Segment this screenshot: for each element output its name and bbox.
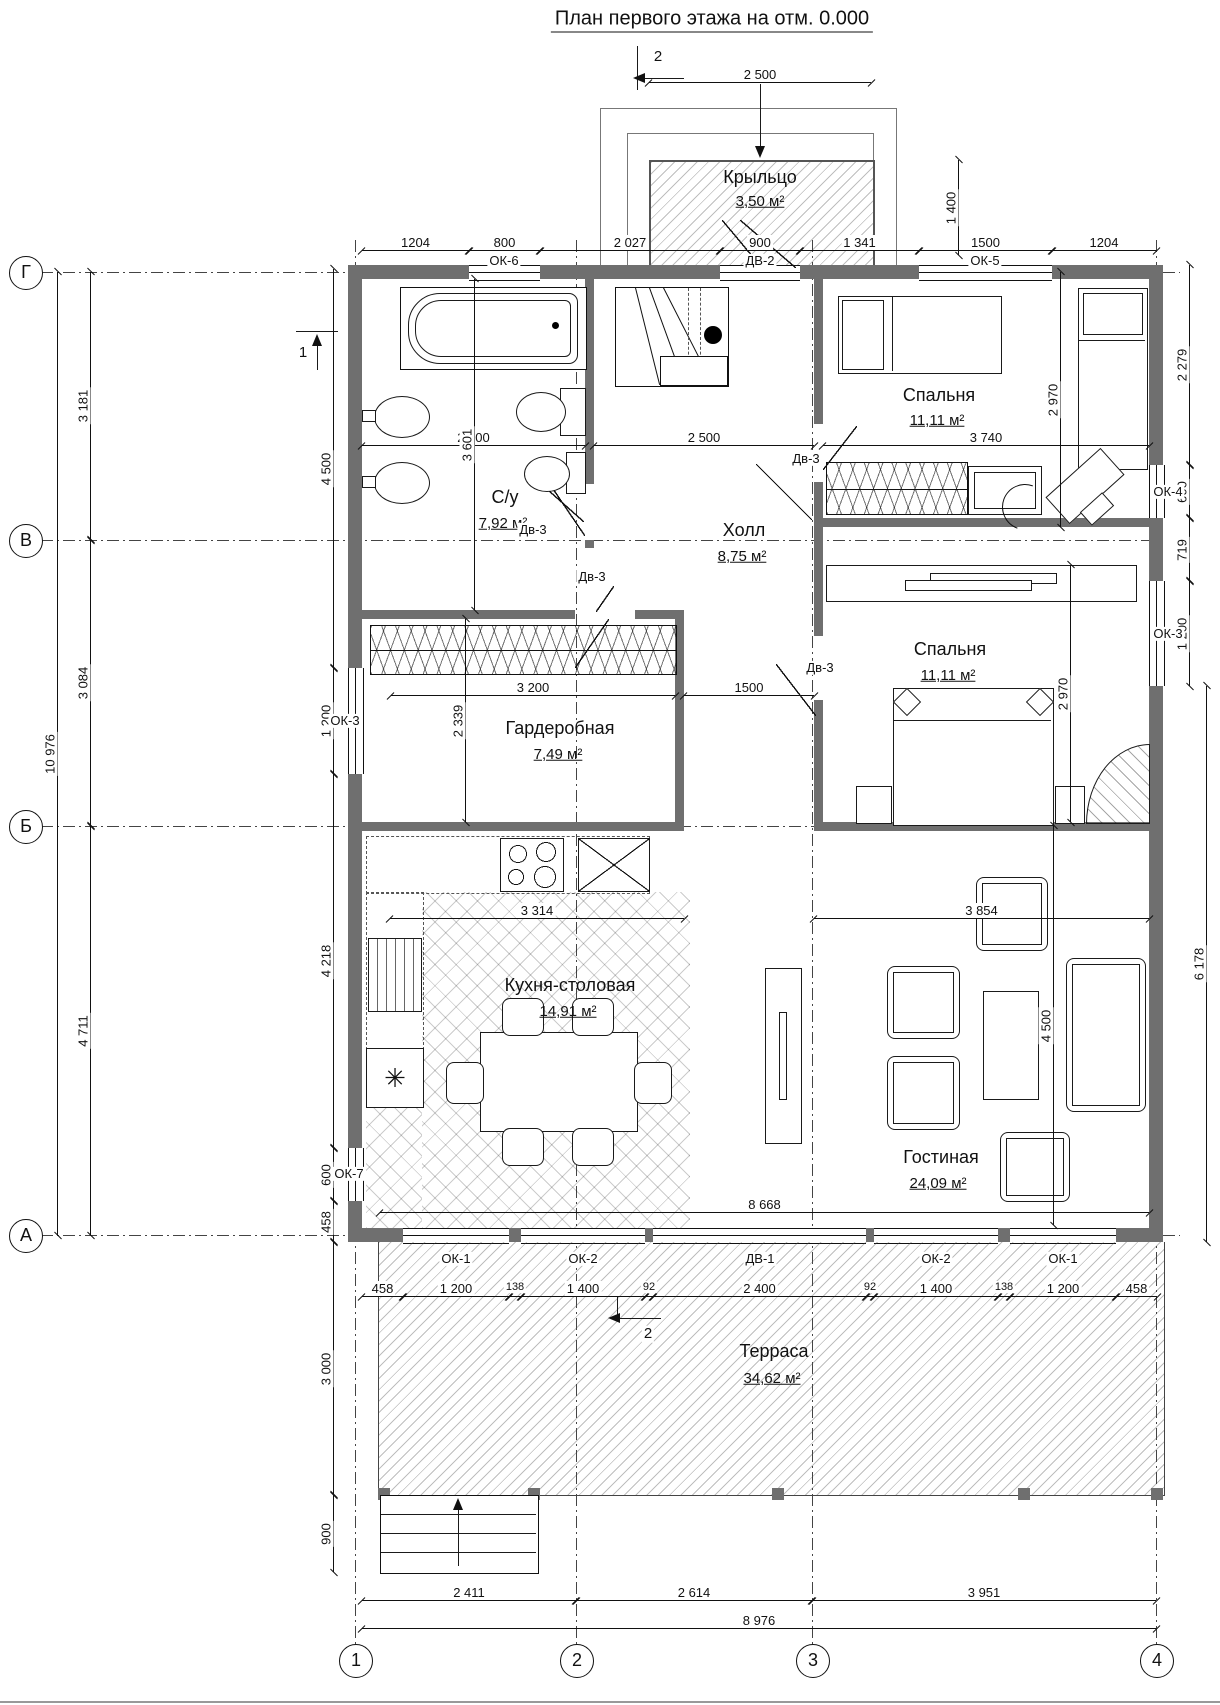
room-area-bedroom1: 11,11 м²: [908, 413, 967, 430]
dim-porch-width: 2 500: [649, 82, 871, 95]
tag-ok3-right: ОК-3: [1151, 627, 1184, 641]
room-label-terrace: Терраса: [737, 1342, 810, 1362]
dim-terrace-depth: 3 000: [333, 1242, 346, 1495]
axis-circle-2: 2: [560, 1644, 594, 1678]
dim-left: 3 181: [90, 272, 103, 540]
axis-circle-a: А: [9, 1219, 43, 1253]
terrace-post: [1018, 1488, 1030, 1500]
armchair-2: [887, 966, 960, 1039]
section-2-bottom-bar: [615, 1318, 661, 1319]
wall-top-1: [348, 265, 469, 279]
room-label-wardrobe: Гардеробная: [504, 719, 617, 739]
sliding-wardrobe-door-b: [905, 580, 1032, 591]
armchair-3: [887, 1056, 960, 1130]
dim-axis-overall: 8 976: [362, 1628, 1156, 1641]
wall-bottom-6: [1116, 1228, 1163, 1242]
wall-bottom-1: [348, 1228, 403, 1242]
nightstand-left: [856, 786, 892, 824]
wall-top-3: [800, 265, 919, 279]
wall-axis-b-left: [362, 822, 684, 831]
wall-bottom-3: [645, 1228, 653, 1242]
section-2-top-line: [637, 46, 638, 90]
section-1-label: 1: [297, 345, 309, 362]
dim-living-depth: 4 500: [1053, 826, 1066, 1225]
tag-ok2-a: ОК-2: [566, 1252, 599, 1266]
dim-left-inner: 458: [333, 1201, 346, 1242]
wall-right-1: [1149, 265, 1163, 465]
tag-ok5: ОК-5: [968, 254, 1001, 268]
chair: [572, 1128, 614, 1166]
tag-dv3-bathroom: Дв-3: [517, 523, 548, 537]
chair: [502, 1128, 544, 1166]
axis-circle-v: В: [9, 524, 43, 558]
tag-ok1-b: ОК-1: [1046, 1252, 1079, 1266]
section-2-top-label: 2: [652, 49, 664, 66]
section-2-top-bar: [640, 78, 684, 79]
tag-dv2: ДВ-2: [743, 254, 776, 268]
dim-right: 1 200: [1189, 581, 1202, 686]
tag-dv3-bedroom2: Дв-3: [804, 661, 835, 675]
wall-bottom-5: [998, 1228, 1010, 1242]
tag-ok2-b: ОК-2: [919, 1252, 952, 1266]
axis-line-v: [41, 540, 1163, 541]
fridge: ✳: [366, 1048, 424, 1108]
dim-axis-1-2: 2 411: [362, 1600, 576, 1613]
sink-1-faucet-icon: [362, 410, 376, 422]
dim-bathroom-depth: 3 601: [474, 279, 487, 610]
door-dv3-wardrobe-leader: [596, 586, 614, 612]
wall-bedroom1-bottom: [823, 518, 1149, 527]
dim-axis-3-4: 3 951: [812, 1600, 1156, 1613]
wall-left-2: [348, 774, 362, 1148]
floor-plan-drawing: План первого этажа на отм. 0.000 Г В Б А…: [0, 0, 1220, 1705]
terrace-post: [772, 1488, 784, 1500]
dim-inner-overall: 8 668: [380, 1212, 1149, 1225]
dim-bottom: 458: [1116, 1296, 1157, 1309]
sink-2-faucet-icon: [362, 476, 376, 488]
room-label-living: Гостиная: [901, 1148, 981, 1168]
wall-right-2: [1149, 518, 1163, 581]
room-label-porch: Крыльцо: [721, 168, 798, 188]
section-1-stem: [317, 344, 318, 370]
wall-bottom-2: [509, 1228, 521, 1242]
kitchen-floor-hatch-2: [366, 1106, 422, 1228]
dim-bedroom1-depth: 2 970: [1060, 272, 1073, 527]
bathtub: [408, 293, 578, 364]
steps-up-arrow-icon: [453, 1498, 463, 1510]
section-2-top-arrow-icon: [633, 73, 645, 83]
room-area-bedroom2: 11,11 м²: [919, 668, 978, 685]
room-area-living: 24,09 м²: [907, 1176, 968, 1193]
axis-circle-3: 3: [796, 1644, 830, 1678]
dim-right: 2 279: [1189, 265, 1202, 465]
chair: [446, 1062, 484, 1104]
section-1-arrow-icon: [312, 334, 322, 346]
dim-top: 1204: [362, 250, 469, 263]
dim-top: 2 027: [540, 250, 720, 263]
sheet-frame-line: [0, 1701, 1220, 1703]
axis-circle-g: Г: [9, 256, 43, 290]
tag-ok3-left: ОК-3: [328, 714, 361, 728]
dim-bottom: 1 200: [403, 1296, 509, 1309]
tag-dv3-bedroom1: Дв-3: [790, 452, 821, 466]
dim-bottom: 1 200: [1010, 1296, 1116, 1309]
wall-wardrobe-top-a: [362, 610, 575, 619]
room-area-terrace: 34,62 м²: [741, 1371, 802, 1388]
axis-circle-b: Б: [9, 810, 43, 844]
kitchen-sink: [578, 838, 650, 892]
room-label-bedroom2: Спальня: [912, 640, 988, 660]
dim-right: 600: [1189, 465, 1202, 518]
wall-bathroom-jamb: [585, 540, 594, 548]
sofa: [1066, 958, 1146, 1112]
bed-1-blanket-line: [892, 297, 893, 371]
bed-double-blanket-line: [894, 720, 1051, 721]
section-2-bottom-arrow-icon: [608, 1313, 620, 1323]
dim-right-overall: 6 178: [1206, 686, 1219, 1242]
dim-bottom: 1 400: [874, 1296, 998, 1309]
coffee-table: [983, 991, 1039, 1100]
dim-corridor-width: 1500: [684, 695, 814, 708]
corner-shelf: [1086, 744, 1150, 824]
toilet-bowl: [516, 392, 566, 432]
room-label-bedroom1: Спальня: [901, 386, 977, 406]
dim-hall-width: 2 500: [594, 445, 814, 458]
tv: [779, 1012, 787, 1100]
wall-bottom-4: [866, 1228, 874, 1242]
sink-2: [374, 462, 430, 504]
tag-ok7: ОК-7: [332, 1167, 365, 1181]
dim-right: 719: [1189, 518, 1202, 581]
wall-left-1: [348, 265, 362, 668]
dim-kitchen-width: 3 314: [390, 918, 684, 931]
bathtub-drain-icon: [552, 322, 559, 329]
tag-ok4: ОК-4: [1151, 485, 1184, 499]
dining-table: [480, 1032, 638, 1132]
section-1-bar: [296, 331, 338, 332]
axis-circle-4: 4: [1140, 1644, 1174, 1678]
kitchen-cabinet: [368, 938, 422, 1012]
dim-top: 1 341: [800, 250, 919, 263]
dim-bottom: 458: [362, 1296, 403, 1309]
wall-hall-bedroom1-b: [814, 482, 823, 636]
stair-post-dot: [704, 326, 722, 344]
bed-double: [893, 688, 1054, 826]
room-area-hall: 8,75 м²: [716, 549, 769, 566]
tag-dv1: ДВ-1: [743, 1252, 776, 1266]
dim-axis-2-3: 2 614: [576, 1600, 812, 1613]
room-area-kitchen: 14,91 м²: [537, 1004, 598, 1021]
room-label-kitchen: Кухня-столовая: [503, 976, 638, 996]
door-dv3-bathroom-leader: [548, 490, 584, 522]
bed-2-blanket-line: [1079, 340, 1145, 341]
stove: [500, 838, 564, 892]
wall-hall-bedroom2: [814, 700, 823, 822]
snowflake-icon: ✳: [384, 1063, 406, 1093]
tag-dv3-wardrobe: Дв-3: [576, 570, 607, 584]
chair: [634, 1062, 672, 1104]
dim-top: 1204: [1052, 250, 1156, 263]
wall-right-3: [1149, 686, 1163, 1242]
dim-left-inner: 4 218: [333, 774, 346, 1148]
entry-arrow-icon: [755, 146, 765, 158]
bidet-bowl: [524, 456, 570, 492]
wall-wardrobe-top-b: [635, 610, 684, 619]
wall-top-2: [540, 265, 720, 279]
room-area-wardrobe: 7,49 м²: [532, 747, 585, 764]
dim-bottom: 1 400: [521, 1296, 645, 1309]
page-title: План первого этажа на отм. 0.000: [551, 8, 873, 33]
room-area-porch: 3,50 м²: [734, 194, 787, 211]
door-dv3-bedroom1-leader: [756, 464, 812, 520]
axis-circle-1: 1: [339, 1644, 373, 1678]
wardrobe-closet: [370, 625, 677, 675]
dim-left-overall: 10 976: [57, 272, 70, 1235]
dim-bedroom1-width: 3 740: [823, 445, 1149, 458]
tag-ok6: ОК-6: [487, 254, 520, 268]
dim-left-inner: 4 500: [333, 269, 346, 668]
stair-landing: [660, 356, 728, 386]
wardrobe-bedroom1: [826, 462, 968, 515]
room-label-hall: Холл: [721, 521, 767, 541]
dim-bedroom2-depth: 2 970: [1070, 565, 1083, 822]
tag-ok1-a: ОК-1: [439, 1252, 472, 1266]
bed-1-pillow: [842, 300, 884, 370]
section-2-bottom-label: 2: [642, 1326, 654, 1343]
terrace-post: [1151, 1488, 1163, 1500]
dim-left: 3 084: [90, 540, 103, 826]
dim-living-width: 3 854: [814, 918, 1149, 931]
wall-hall-bedroom1-a: [814, 279, 823, 424]
bed-2-pillow: [1083, 293, 1143, 335]
dim-bottom: 2 400: [653, 1296, 866, 1309]
sink-1: [374, 396, 430, 438]
room-label-bathroom: С/у: [490, 488, 521, 508]
dim-wardrobe-width: 3 200: [391, 695, 675, 708]
dim-left: 4 711: [90, 826, 103, 1235]
dim-steps-depth: 900: [333, 1495, 346, 1572]
steps-arrow-stem: [458, 1510, 459, 1566]
